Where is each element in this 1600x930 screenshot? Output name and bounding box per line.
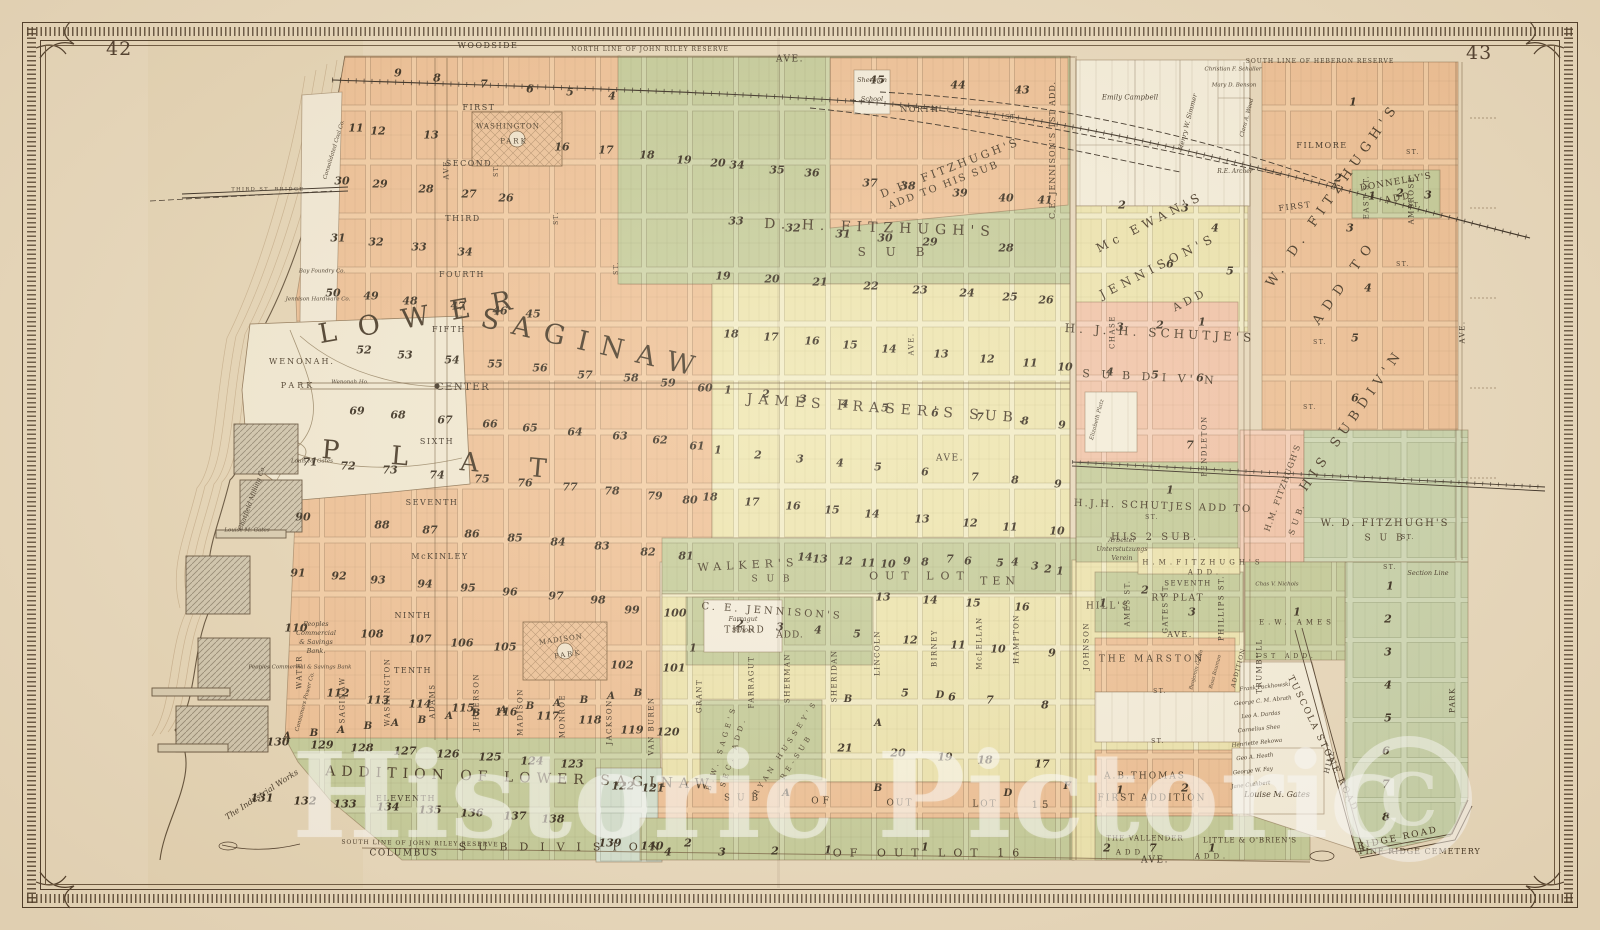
block-number: 14 — [881, 344, 896, 355]
owner-label: Wenonah Ho. — [331, 380, 368, 386]
block-number: 9 — [1048, 648, 1056, 659]
block-number: 90 — [295, 512, 310, 523]
block-number: 7 — [1382, 779, 1390, 790]
block-number: 17 — [598, 145, 613, 156]
street-label: ST. — [1406, 150, 1420, 156]
owner-label: Louis M. Gates — [291, 459, 333, 465]
subdivision-title: PLAT — [321, 437, 600, 487]
block-number: 18 — [723, 329, 738, 340]
subdivision-title: H.M.FITZHUGH'S — [1142, 560, 1263, 567]
street-label: SEVENTH — [406, 499, 459, 507]
subdivision-title: S U B — [724, 795, 760, 804]
owner-label: School — [732, 627, 754, 634]
subdivision-title: S U B — [858, 246, 933, 258]
block-letter: D — [936, 691, 945, 701]
street-label-vertical: SHERMAN — [785, 653, 792, 703]
block-number: 125 — [479, 752, 502, 763]
block-number: 19 — [676, 155, 691, 166]
subdivision-title: E.W. AMES — [1259, 620, 1335, 627]
owner-label: George C. M. Abrath — [1234, 696, 1292, 708]
street-label-vertical: PARK — [1450, 687, 1457, 713]
block-number: 102 — [611, 660, 634, 671]
block-number: 17 — [744, 497, 759, 508]
block-number: 5 — [874, 462, 882, 473]
street-label: McKINLEY — [411, 553, 468, 561]
block-number: 7 — [971, 472, 979, 483]
block-number: 4 — [836, 458, 844, 469]
block-number: 132 — [294, 796, 317, 807]
subdivision-title: THE MARSTON — [1099, 656, 1205, 665]
block-number: 5 — [853, 629, 861, 640]
block-number: 10 — [1057, 362, 1072, 373]
block-number: 85 — [507, 533, 522, 544]
street-label: AVE. — [936, 455, 964, 464]
block-number: 3 — [1384, 647, 1392, 658]
subdivision-title: OF OUT LOT 16 — [833, 848, 1027, 859]
block-number: 43 — [1014, 85, 1029, 96]
subdivision-title: WASHINGTON — [476, 124, 540, 131]
street-label: NINTH — [395, 612, 432, 620]
block-number: 23 — [912, 285, 927, 296]
block-number: 6 — [526, 84, 534, 95]
block-number: 10 — [990, 644, 1005, 655]
block-number: 75 — [474, 474, 489, 485]
street-label-vertical: VAN BUREN — [649, 696, 656, 755]
block-number: 11 — [1002, 522, 1017, 533]
block-number: 11 — [860, 558, 875, 569]
block-letter: A — [607, 692, 615, 702]
street-label: ST. — [1303, 405, 1317, 411]
block-number: 52 — [356, 345, 371, 356]
block-number: 92 — [331, 571, 346, 582]
block-letter: B — [418, 716, 426, 726]
block-number: 22 — [863, 281, 878, 292]
street-label-vertical: WATER — [297, 655, 304, 689]
block-letter: B — [472, 709, 480, 719]
block-number: 1 — [1166, 485, 1174, 496]
block-number: 38 — [900, 181, 915, 192]
block-number: 45 — [525, 309, 540, 320]
block-letter: B — [310, 729, 318, 739]
block-number: 138 — [542, 814, 565, 825]
block-number: 80 — [682, 495, 697, 506]
subdivision-title: PARK — [281, 382, 315, 390]
block-number: 1 — [824, 845, 832, 856]
block-number: 5 — [1384, 713, 1392, 724]
block-number: 13 — [812, 554, 827, 565]
street-label-vertical: AVE. — [444, 156, 451, 179]
block-number: 57 — [577, 370, 592, 381]
subdivision-title: OUT — [887, 800, 914, 809]
block-number: 66 — [482, 419, 497, 430]
block-number: 4 — [841, 399, 849, 410]
street-label-vertical: BIRNEY — [932, 629, 939, 667]
street-label: AVE. — [1141, 857, 1169, 866]
block-number: 20 — [710, 158, 725, 169]
block-number: 37 — [862, 178, 877, 189]
owner-label: Louise M. Gates — [1244, 791, 1310, 799]
block-number: 8 — [433, 73, 441, 84]
block-letter: B — [580, 696, 588, 706]
street-label-vertical: ST. — [614, 261, 620, 275]
block-number: 61 — [689, 441, 704, 452]
street-label: NORTH — [900, 106, 939, 114]
owner-label: Section Line — [1407, 570, 1448, 577]
owner-label: Geo A. Heath — [1236, 753, 1274, 762]
owner-label: Jennison Hardware Co. — [286, 297, 351, 303]
block-number: 28 — [998, 243, 1013, 254]
block-number: 134 — [377, 802, 400, 813]
block-letter: B — [364, 722, 372, 732]
block-number: 60 — [697, 383, 712, 394]
subdivision-title: MADISON — [539, 633, 584, 646]
block-number: 119 — [621, 725, 644, 736]
street-label-vertical: JEFFERSON — [474, 673, 481, 731]
block-number: 114 — [409, 699, 432, 710]
block-number: 1 — [1349, 97, 1357, 108]
owner-label: Consolidated Coal Co. — [323, 120, 346, 181]
subdivision-title: H.J.H. SCHUTJES ADD TO — [1074, 499, 1253, 515]
block-number: 33 — [411, 242, 426, 253]
owner-label: Christian F. Schaller — [1204, 67, 1261, 73]
block-number: 10 — [1049, 526, 1064, 537]
block-number: 63 — [612, 431, 627, 442]
block-number: 2 — [1181, 783, 1189, 794]
subdivision-title: OF — [811, 798, 833, 807]
block-number: 98 — [590, 595, 605, 606]
street-label-vertical: HAMPTON — [1014, 614, 1021, 664]
owner-label: Peoples Commercial & Savings Bank — [249, 665, 352, 671]
block-number: 2 — [1044, 564, 1052, 575]
block-letter: A — [782, 789, 790, 799]
block-number: 126 — [437, 749, 460, 760]
street-label: SEVENTH — [1164, 581, 1211, 588]
subdivision-title: RYAN HUSSEY'S — [752, 699, 819, 797]
block-number: 7 — [1149, 843, 1157, 854]
block-number: 53 — [397, 350, 412, 361]
street-label-vertical: JACKSON — [607, 699, 614, 745]
street-label-vertical: SHERIDAN — [832, 650, 839, 703]
block-number: 20 — [890, 748, 905, 759]
block-letter: B — [634, 689, 642, 699]
block-number: 81 — [678, 551, 693, 562]
street-label-vertical: AVE. — [909, 332, 916, 355]
block-number: 133 — [334, 799, 357, 810]
subdivision-title: NORTH LINE OF JOHN RILEY RESERVE — [571, 47, 729, 53]
subdivision-title: WALKER'S — [697, 557, 799, 573]
block-number: 14 — [864, 509, 879, 520]
block-letter: B — [844, 695, 852, 705]
block-number: 2 — [1103, 843, 1111, 854]
block-number: 2 — [1334, 173, 1342, 184]
owner-label: Bank. — [307, 648, 326, 655]
subdivision-title: RY PLAT — [1151, 595, 1204, 604]
owner-label: George W. Fay — [1233, 767, 1273, 777]
subdivision-title: ADD. — [1195, 854, 1229, 861]
street-label: AVE. — [1167, 631, 1193, 639]
block-number: 4 — [814, 625, 822, 636]
block-number: 6 — [931, 408, 939, 419]
block-number: 93 — [370, 575, 385, 586]
block-number: 8 — [1021, 416, 1029, 427]
street-label: WOODSIDE — [458, 42, 519, 50]
block-number: 5 — [881, 403, 889, 414]
owner-label: Unterstutzungs — [1096, 546, 1147, 553]
street-label: ST. — [1145, 515, 1159, 521]
block-number: 11 — [1022, 358, 1037, 369]
street-label: ST. — [1401, 535, 1415, 541]
block-number: 13 — [914, 514, 929, 525]
subdivision-title: FIRST ADDITION — [1098, 795, 1207, 804]
subdivision-title: SAGINAW — [478, 305, 709, 383]
block-number: 21 — [837, 743, 852, 754]
subdivision-title: THE VALLENDER — [1106, 836, 1183, 843]
block-number: 101 — [663, 663, 686, 674]
street-label: FIRST — [462, 104, 495, 112]
block-number: 54 — [444, 355, 459, 366]
block-number: 31 — [330, 233, 345, 244]
block-number: 95 — [460, 583, 475, 594]
street-label-vertical: PHILLIPS ST. — [1219, 575, 1226, 641]
block-letter: A — [553, 699, 561, 709]
block-number: 3 — [796, 454, 804, 465]
block-number: 16 — [554, 142, 569, 153]
subdivision-title: C. E. JENNISON'S — [701, 602, 843, 622]
street-label: FOURTH — [439, 271, 485, 279]
block-number: 135 — [419, 805, 442, 816]
block-letter: F — [1063, 782, 1070, 792]
block-number: 14 — [922, 595, 937, 606]
owner-label: Clara A. Wood — [1240, 98, 1256, 138]
owner-label: Farragut — [729, 616, 758, 623]
street-label-vertical: AMBROSE — [1409, 176, 1416, 225]
block-number: 35 — [769, 165, 784, 176]
block-number: 16 — [785, 501, 800, 512]
block-number: 1 — [1386, 581, 1394, 592]
block-number: 21 — [812, 277, 827, 288]
block-number: 94 — [417, 579, 432, 590]
block-number: 9 — [1054, 479, 1062, 490]
block-number: 13 — [933, 349, 948, 360]
subdivision-title: PARK — [500, 139, 528, 146]
block-number: 78 — [604, 486, 619, 497]
owner-label: Verein — [1111, 555, 1132, 562]
block-number: 41 — [1037, 195, 1052, 206]
map-labels-layer: LOWERSAGINAWPLATJAMES FRASER'S SUB.D. H.… — [0, 0, 1600, 930]
block-number: 48 — [402, 296, 417, 307]
subdivision-title: PINE RIDGE CEMETERY — [1359, 848, 1481, 856]
street-label-vertical: FARRAGUT — [749, 655, 756, 708]
block-number: 4 — [1384, 680, 1392, 691]
block-number: 2 — [762, 389, 770, 400]
block-number: 6 — [1351, 393, 1359, 404]
block-number: 12 — [979, 354, 994, 365]
block-number: 62 — [652, 435, 667, 446]
owner-label: Henriette Rekowa — [1232, 739, 1283, 750]
owner-label: Sherman — [857, 77, 887, 84]
block-number: 12 — [902, 635, 917, 646]
subdivision-title: ADD — [1116, 850, 1144, 857]
block-number: 3 — [799, 394, 807, 405]
block-number: 6 — [948, 692, 956, 703]
street-label: COLUMBUS — [370, 850, 439, 859]
street-label: CENTER — [436, 383, 490, 393]
block-number: 100 — [664, 608, 687, 619]
subdivision-title: TEN — [980, 576, 1020, 587]
street-label-vertical: MADISON — [518, 688, 525, 736]
block-number: 33 — [728, 216, 743, 227]
block-number: 3 — [776, 622, 784, 633]
block-number: 12 — [370, 126, 385, 137]
block-number: 7 — [946, 554, 954, 565]
block-number: 56 — [532, 363, 547, 374]
owner-label: The Industrial Works — [224, 768, 300, 821]
block-number: 16 — [804, 336, 819, 347]
block-letter: B — [526, 702, 534, 712]
block-number: 82 — [640, 547, 655, 558]
block-number: 5 — [1226, 266, 1234, 277]
block-number: 112 — [327, 688, 350, 699]
block-number: 3 — [1181, 203, 1189, 214]
block-number: 24 — [959, 288, 974, 299]
subdivision-title: S U B — [751, 576, 792, 585]
block-number: 2 — [754, 450, 762, 461]
owner-label: Henry W. Simmer — [1177, 93, 1198, 151]
block-number: 1 — [689, 643, 697, 654]
block-number: 13 — [423, 130, 438, 141]
block-number: 34 — [457, 247, 472, 258]
block-number: 86 — [464, 529, 479, 540]
subdivision-title: A.B.THOMAS — [1104, 773, 1186, 782]
block-letter: A — [283, 732, 291, 742]
owner-label: Peoples — [303, 621, 328, 628]
street-label-vertical: McLELLAN — [977, 616, 984, 669]
owner-label: School — [861, 96, 883, 103]
block-letter: B — [874, 784, 882, 794]
block-number: 8 — [1011, 475, 1019, 486]
block-number: 6 — [964, 556, 972, 567]
block-letter: A — [874, 719, 882, 729]
block-number: 3 — [1346, 223, 1354, 234]
owner-label: Louise M. Gates — [224, 528, 269, 534]
block-number: 58 — [623, 373, 638, 384]
block-number: 121 — [642, 783, 665, 794]
block-number: 67 — [437, 415, 452, 426]
block-number: 77 — [562, 482, 577, 493]
block-number: 26 — [498, 193, 513, 204]
block-letter: A — [445, 712, 453, 722]
owner-label: Chatfield Milling Co. — [237, 465, 266, 531]
owner-label: Emily Campbell — [1102, 95, 1158, 102]
block-number: 113 — [367, 695, 390, 706]
block-number: 5 — [1351, 333, 1359, 344]
owner-label: Chas V. Nichols — [1255, 582, 1298, 588]
street-label-vertical: AVE. — [1460, 320, 1467, 343]
street-label: FILMORE — [1296, 142, 1347, 150]
block-number: 12 — [962, 518, 977, 529]
block-number: 14 — [797, 552, 812, 563]
block-number: 15 — [824, 505, 839, 516]
block-number: 6 — [1166, 259, 1174, 270]
block-number: 1 — [1293, 607, 1301, 618]
street-label: FIRST — [1278, 201, 1312, 213]
block-number: 99 — [624, 605, 639, 616]
street-label-vertical: LINCOLN — [875, 630, 882, 676]
street-label-vertical: JOHNSON — [1084, 622, 1091, 670]
block-number: 20 — [764, 274, 779, 285]
block-number: 15 — [842, 340, 857, 351]
subdivision-title: OUT LOT — [869, 571, 971, 582]
owner-label: Rosa Bauman — [1209, 655, 1223, 690]
block-number: 108 — [361, 629, 384, 640]
subdivision-title: LITTLE & O'BRIEN'S — [1203, 838, 1297, 845]
block-number: 34 — [729, 160, 744, 171]
block-number: 27 — [461, 189, 476, 200]
block-number: 29 — [372, 179, 387, 190]
block-number: 6 — [921, 467, 929, 478]
block-number: 69 — [349, 406, 364, 417]
block-number: 6 — [1382, 746, 1390, 757]
block-number: 17 — [763, 332, 778, 343]
block-number: 18 — [702, 492, 717, 503]
block-number: 97 — [548, 591, 563, 602]
street-label: SIXTH — [420, 438, 454, 446]
subdivision-title: WENONAH. — [269, 358, 335, 366]
street-label-vertical: GATES ST. — [1163, 582, 1170, 633]
street-label: AVE. — [776, 56, 804, 65]
block-number: 4 — [664, 847, 672, 858]
owner-label: R.E. Archer — [1217, 169, 1252, 175]
owner-label: Bay Foundry Co. — [299, 269, 345, 275]
subdivision-title: LOT — [972, 801, 997, 810]
block-number: 12 — [837, 556, 852, 567]
owner-label: Leo A. Dardas — [1241, 711, 1281, 721]
block-number: 31 — [835, 229, 850, 240]
street-label: ST. — [1151, 739, 1165, 745]
block-number: 13 — [875, 592, 890, 603]
street-label: ST. — [1153, 689, 1167, 695]
block-number: 18 — [639, 150, 654, 161]
block-number: 30 — [334, 176, 349, 187]
street-label: ST. — [1383, 565, 1397, 571]
block-number: 136 — [461, 808, 484, 819]
block-number: 96 — [502, 587, 517, 598]
block-number: 1 — [1116, 785, 1124, 796]
street-label-vertical: GRANT — [697, 679, 704, 713]
block-number: 32 — [368, 237, 383, 248]
block-number: 4 — [1106, 367, 1114, 378]
block-number: 1 — [921, 842, 929, 853]
block-number: 9 — [394, 68, 402, 79]
block-number: 29 — [922, 237, 937, 248]
owner-label: Elizabeth Platz — [1090, 399, 1106, 441]
block-number: 1 — [714, 445, 722, 456]
block-number: 15 — [965, 598, 980, 609]
subdivision-title: 15 — [1032, 801, 1053, 811]
block-number: 87 — [422, 525, 437, 536]
block-number: 11 — [950, 640, 965, 651]
block-number: 64 — [567, 427, 582, 438]
block-number: 6 — [1196, 373, 1204, 384]
block-number: 88 — [374, 520, 389, 531]
street-label: ST. — [1396, 262, 1410, 268]
street-label: TENTH — [394, 667, 432, 675]
street-label: ST. — [1005, 115, 1019, 121]
block-number: 7 — [976, 412, 984, 423]
block-number: 8 — [1041, 700, 1049, 711]
street-label: THIRD — [445, 215, 480, 223]
block-number: 68 — [390, 410, 405, 421]
